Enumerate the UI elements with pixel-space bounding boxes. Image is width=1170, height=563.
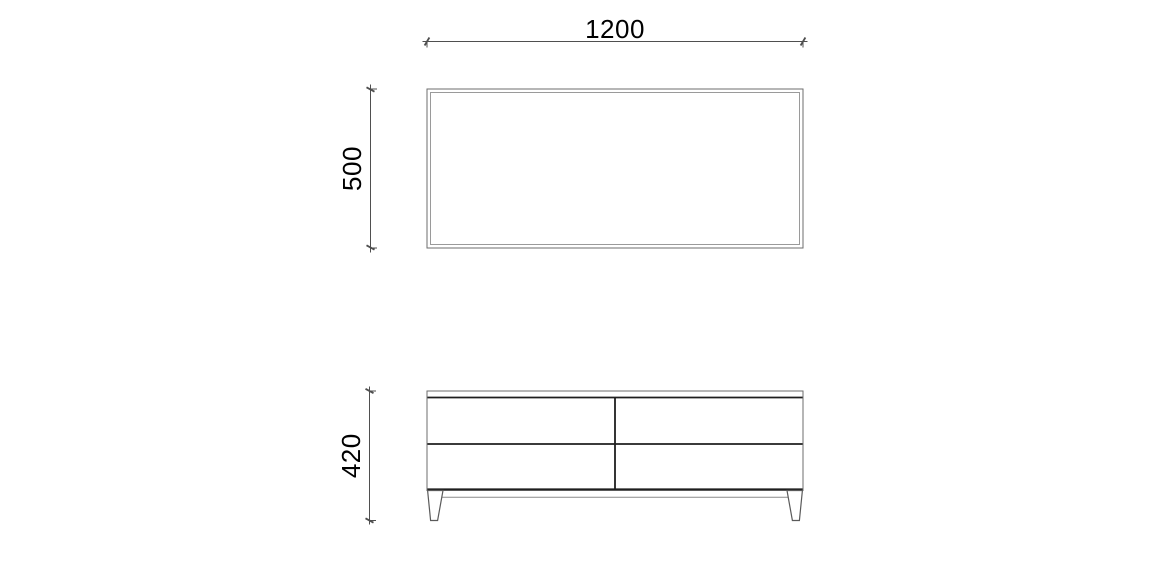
dimension-height: 420 <box>336 387 376 525</box>
dimension-depth: 500 <box>337 85 377 253</box>
drawing-canvas: 1200 500 420 <box>0 0 1170 563</box>
furniture-technical-drawing: 1200 500 420 <box>0 0 1170 563</box>
dimension-width-label: 1200 <box>585 14 645 44</box>
legs <box>428 491 803 521</box>
front-view <box>427 391 803 521</box>
top-view <box>427 89 803 248</box>
top-view-outer-outline <box>427 89 803 248</box>
dimension-depth-label: 500 <box>337 146 367 191</box>
left-leg <box>428 491 443 521</box>
dimension-height-label: 420 <box>336 433 366 478</box>
dimension-width: 1200 <box>423 14 808 48</box>
right-leg <box>787 491 802 521</box>
